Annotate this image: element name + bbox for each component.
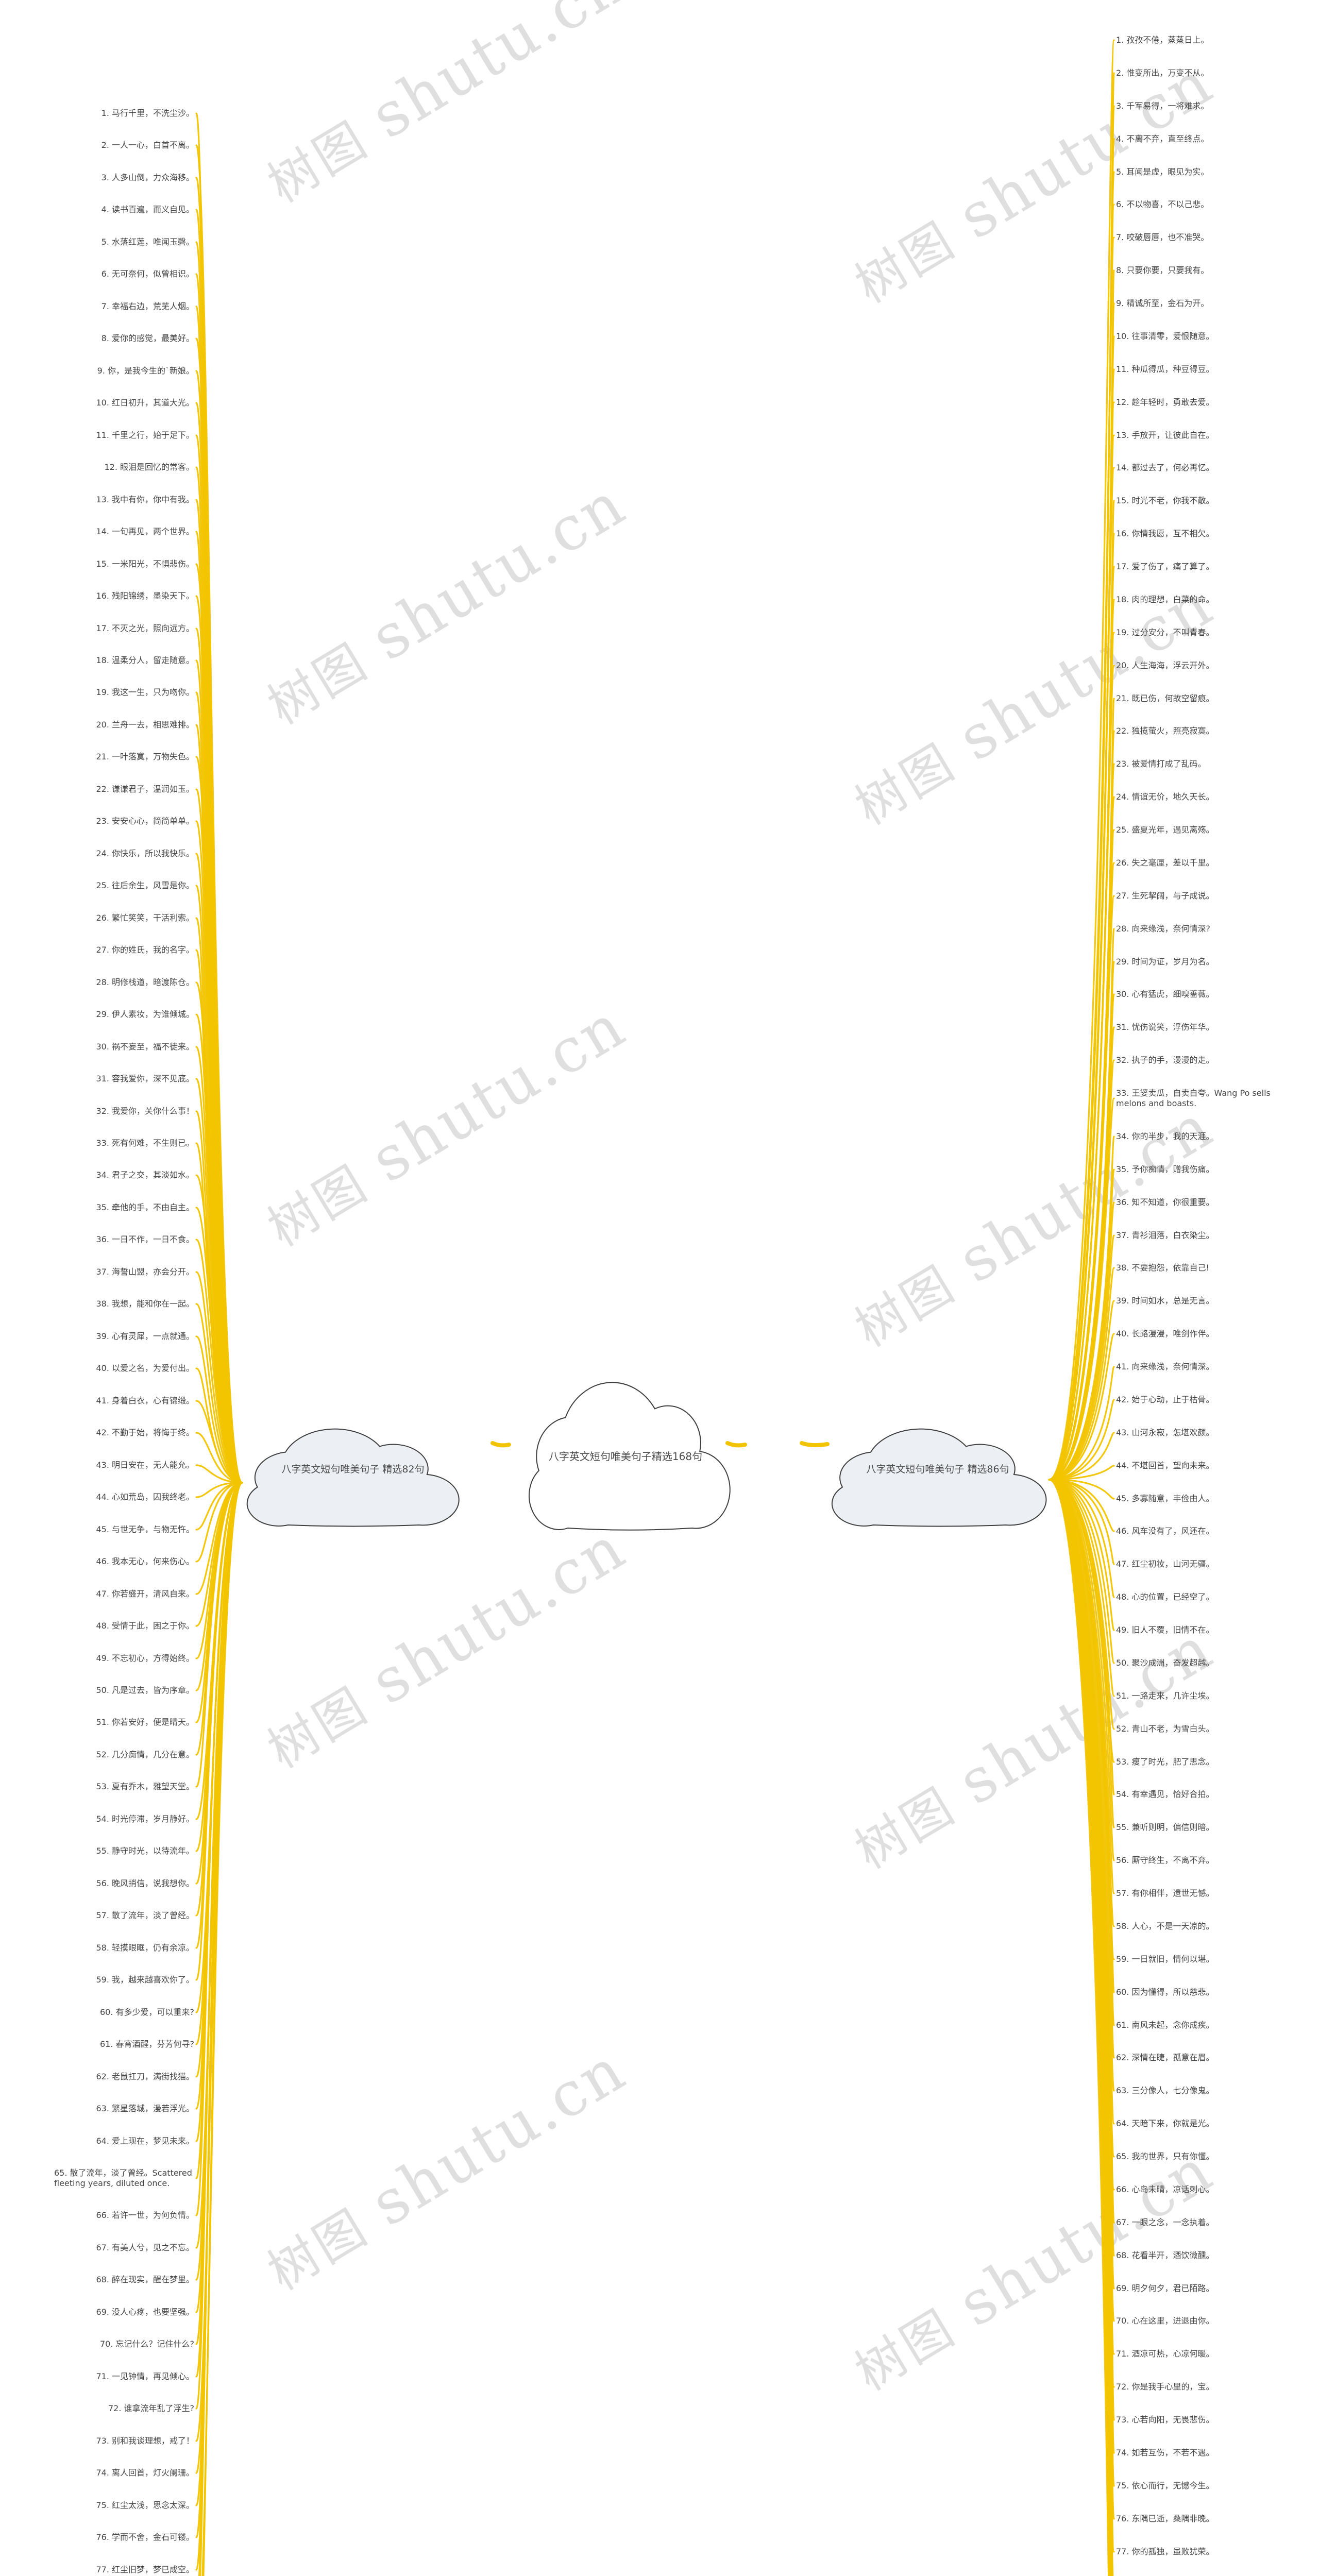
left-item: 15. 一米阳光，不惧悲伤。: [96, 559, 194, 569]
right-item: 15. 时光不老，你我不散。: [1116, 496, 1214, 506]
right-item: 69. 明夕何夕，君已陌路。: [1116, 2283, 1214, 2294]
left-item: 23. 安安心心，简简单单。: [96, 816, 194, 826]
right-item: 54. 有幸遇见，恰好合拍。: [1116, 1789, 1214, 1800]
left-item: 58. 轻摸眼眶，仍有余凉。: [96, 1943, 194, 1953]
right-item: 62. 深情在睫，孤意在眉。: [1116, 2053, 1214, 2063]
right-item: 29. 时间为证，岁月为名。: [1116, 957, 1214, 967]
right-item: 77. 你的孤独，虽败犹荣。: [1116, 2547, 1214, 2557]
left-item: 11. 千里之行，始于足下。: [96, 430, 194, 440]
right-item: 25. 盛夏光年，遇见离殇。: [1116, 825, 1214, 835]
right-item: 43. 山河永寂，怎堪欢颜。: [1116, 1428, 1214, 1438]
right-item: 65. 我的世界，只有你懂。: [1116, 2151, 1214, 2162]
right-item: 35. 予你痴情，赠我伤痛。: [1116, 1164, 1214, 1175]
right-item: 49. 旧人不覆，旧情不在。: [1116, 1625, 1214, 1635]
left-item: 17. 不灭之光，照向远方。: [96, 623, 194, 634]
left-item: 5. 水落红莲，唯闻玉磬。: [102, 237, 194, 247]
right-item: 4. 不离不弃，直至终点。: [1116, 134, 1209, 144]
left-item: 4. 读书百遍，而义自见。: [102, 205, 194, 215]
right-item: 39. 时间如水，总是无言。: [1116, 1296, 1214, 1306]
left-item: 31. 容我爱你，深不见底。: [96, 1074, 194, 1084]
left-item: 36. 一日不作，一日不食。: [96, 1234, 194, 1245]
right-item: 68. 花看半开，酒饮微醺。: [1116, 2250, 1214, 2261]
right-item: 73. 心若向阳，无畏悲伤。: [1116, 2415, 1214, 2425]
left-item: 25. 往后余生，风雪是你。: [96, 880, 194, 891]
right-item: 53. 瘦了时光，肥了思念。: [1116, 1757, 1214, 1767]
left-item: 19. 我这一生，只为吻你。: [96, 687, 194, 698]
right-item: 26. 失之毫厘，差以千里。: [1116, 858, 1214, 868]
right-item: 59. 一日就旧，情何以堪。: [1116, 1954, 1214, 1964]
left-item: 68. 醉在现实，醒在梦里。: [96, 2275, 194, 2285]
right-item: 63. 三分像人，七分像鬼。: [1116, 2086, 1214, 2096]
left-item: 1. 马行千里，不洗尘沙。: [102, 108, 194, 118]
left-item: 65. 散了流年，淡了曾经。Scattered fleeting years, …: [54, 2168, 194, 2189]
left-item: 50. 凡是过去，皆为序章。: [96, 1685, 194, 1696]
right-item: 70. 心在这里，进退由你。: [1116, 2316, 1214, 2326]
left-item: 70. 忘记什么？记住什么?: [100, 2339, 194, 2349]
left-item: 72. 谁拿流年乱了浮生?: [108, 2403, 194, 2414]
right-item: 57. 有你相伴，遗世无憾。: [1116, 1888, 1214, 1899]
right-item: 66. 心岛未晴，凉话刺心。: [1116, 2184, 1214, 2195]
right-item: 74. 如若互伤，不若不遇。: [1116, 2448, 1214, 2458]
item-connector: [1049, 106, 1114, 1480]
right-item: 72. 你是我手心里的，宝。: [1116, 2382, 1214, 2392]
left-item: 49. 不忘初心，方得始终。: [96, 1653, 194, 1664]
right-item: 16. 你情我愿，互不相欠。: [1116, 529, 1214, 539]
left-item-list: 1. 马行千里，不洗尘沙。2. 一人一心，白首不离。3. 人多山倒，力众海移。4…: [28, 108, 194, 2576]
left-item: 39. 心有灵犀，一点就通。: [96, 1331, 194, 1342]
left-item: 63. 繁星落城，漫若浮光。: [96, 2104, 194, 2114]
left-item: 9. 你，是我今生的`新娘。: [97, 366, 194, 376]
left-item: 57. 散了流年，淡了曾经。: [96, 1910, 194, 1921]
right-item: 9. 精诚所至，金石为开。: [1116, 298, 1209, 309]
right-branch-link-2: [802, 1443, 827, 1445]
right-item: 10. 往事清零，爱恨随意。: [1116, 331, 1214, 342]
right-branch-title: 八字英文短句唯美句子 精选86句: [832, 1463, 1043, 1476]
left-item: 76. 学而不舍，金石可镂。: [96, 2532, 194, 2543]
left-item: 73. 别和我谈理想，戒了！: [96, 2436, 194, 2446]
right-item: 71. 酒凉可热，心凉何暖。: [1116, 2349, 1214, 2359]
right-item: 40. 长路漫漫，唯剑作伴。: [1116, 1329, 1214, 1339]
right-item-list: 1. 孜孜不倦，蒸蒸日上。2. 惟变所出，万变不从。3. 千军易得，一将难求。4…: [1116, 35, 1286, 2576]
left-item: 47. 你若盛开，清风自来。: [96, 1589, 194, 1599]
right-item: 28. 向来缘浅，奈何情深?: [1116, 924, 1210, 934]
right-item: 60. 因为懂得，所以慈悲。: [1116, 1987, 1214, 1997]
root-node-title: 八字英文短句唯美句子精选168句: [531, 1449, 720, 1464]
right-item: 6. 不以物喜，不以己悲。: [1116, 199, 1209, 210]
left-branch-link: [493, 1443, 509, 1445]
left-item: 3. 人多山倒，力众海移。: [102, 173, 194, 183]
right-item: 51. 一路走来，几许尘埃。: [1116, 1691, 1214, 1701]
left-item: 30. 祸不妄至，福不徒来。: [96, 1042, 194, 1052]
right-item: 64. 天暗下来，你就是光。: [1116, 2119, 1214, 2129]
right-item: 50. 聚沙成洲，奋发超越。: [1116, 1658, 1214, 1668]
left-item: 28. 明修栈道，暗渡陈仓。: [96, 977, 194, 988]
left-item: 53. 夏有乔木，雅望天堂。: [96, 1782, 194, 1792]
left-item: 46. 我本无心，何来伤心。: [96, 1556, 194, 1567]
left-item: 42. 不勤于始，将悔于终。: [96, 1428, 194, 1438]
right-item: 55. 兼听则明，偏信则暗。: [1116, 1822, 1214, 1833]
left-item: 22. 谦谦君子，温润如玉。: [96, 784, 194, 794]
left-item: 75. 红尘太浅，思念太深。: [96, 2500, 194, 2511]
right-item: 48. 心的位置，已经空了。: [1116, 1592, 1214, 1602]
right-item: 38. 不要抱怨，依靠自己!: [1116, 1263, 1209, 1273]
right-item: 75. 依心而行，无憾今生。: [1116, 2481, 1214, 2491]
right-item: 2. 惟变所出，万变不从。: [1116, 68, 1209, 78]
left-item: 41. 身着白衣，心有锦缎。: [96, 1396, 194, 1406]
left-item: 8. 爱你的感觉，最美好。: [102, 333, 194, 344]
left-item: 60. 有多少爱，可以重来?: [100, 2007, 194, 2018]
left-item: 52. 几分痴情，几分在意。: [96, 1750, 194, 1760]
right-item: 24. 情谊无价，地久天长。: [1116, 792, 1214, 802]
right-item: 34. 你的半步，我的天涯。: [1116, 1131, 1214, 1142]
right-item: 52. 青山不老，为雪白头。: [1116, 1724, 1214, 1734]
left-item: 61. 春宵酒醒，芬芳何寻?: [100, 2039, 194, 2049]
left-item: 59. 我，越来越喜欢你了。: [96, 1975, 194, 1985]
left-item: 38. 我想，能和你在一起。: [96, 1299, 194, 1309]
right-item: 7. 咬破唇唇，也不准哭。: [1116, 232, 1209, 243]
left-item: 77. 红尘旧梦，梦已成空。: [96, 2565, 194, 2575]
right-item: 36. 知不知道，你很重要。: [1116, 1197, 1214, 1208]
left-item: 24. 你快乐，所以我快乐。: [96, 849, 194, 859]
left-item: 69. 没人心疼，也要坚强。: [96, 2307, 194, 2317]
left-branch-title: 八字英文短句唯美句子 精选82句: [247, 1463, 459, 1476]
left-item: 43. 明日安在，无人能允。: [96, 1460, 194, 1470]
left-item: 6. 无可奈何，似曾相识。: [102, 269, 194, 279]
left-item: 67. 有美人兮，见之不忘。: [96, 2243, 194, 2253]
left-item: 18. 温柔分人，留走随意。: [96, 655, 194, 666]
right-item: 30. 心有猛虎，细嗅蔷薇。: [1116, 989, 1214, 999]
branch-connectors: [196, 40, 1114, 2576]
right-item: 18. 肉的理想，白菜的命。: [1116, 595, 1214, 605]
right-item: 19. 过分安分，不叫青春。: [1116, 628, 1214, 638]
right-item: 41. 向来缘浅，奈何情深。: [1116, 1362, 1214, 1372]
left-item: 14. 一句再见，两个世界。: [96, 527, 194, 537]
right-item: 67. 一眼之念，一念执着。: [1116, 2217, 1214, 2228]
right-branch-link: [728, 1443, 745, 1445]
right-item: 21. 既已伤，何故空留痕。: [1116, 693, 1214, 704]
left-item: 40. 以爱之名，为爱付出。: [96, 1363, 194, 1374]
right-item: 37. 青衫泪落，白衣染尘。: [1116, 1230, 1214, 1241]
right-item: 20. 人生海海，浮云开外。: [1116, 660, 1214, 671]
right-item: 76. 东隅已逝，桑隅非晚。: [1116, 2514, 1214, 2524]
right-item: 22. 独揽萤火，照亮寂寞。: [1116, 726, 1214, 736]
right-item: 58. 人心，不是一天凉的。: [1116, 1921, 1214, 1931]
left-item: 16. 残阳锦绣，墨染天下。: [96, 591, 194, 601]
right-item: 5. 耳闻是虚，眼见为实。: [1116, 167, 1209, 177]
left-item: 20. 兰舟一去，相思难排。: [96, 720, 194, 730]
left-item: 74. 离人回首，灯火阑珊。: [96, 2468, 194, 2478]
right-item: 27. 生死挈阔，与子成说。: [1116, 891, 1214, 901]
left-item: 71. 一见钟情，再见倾心。: [96, 2371, 194, 2382]
right-item: 1. 孜孜不倦，蒸蒸日上。: [1116, 35, 1209, 45]
right-item: 11. 种瓜得瓜，种豆得豆。: [1116, 364, 1214, 375]
left-item: 12. 眼泪是回忆的常客。: [104, 462, 194, 472]
right-item: 3. 千军易得，一将难求。: [1116, 101, 1209, 111]
right-item: 45. 多寡随意，丰俭由人。: [1116, 1494, 1214, 1504]
right-item: 8. 只要你要，只要我有。: [1116, 265, 1209, 276]
left-item: 7. 幸福右边，荒芜人烟。: [102, 301, 194, 312]
right-item: 13. 手放开，让彼此自在。: [1116, 430, 1214, 440]
left-item: 29. 伊人素妆，为谁倾城。: [96, 1009, 194, 1020]
left-item: 48. 受情于此，困之于你。: [96, 1621, 194, 1631]
left-item: 44. 心如荒岛，囚我终老。: [96, 1492, 194, 1502]
left-item: 51. 你若安好，便是晴天。: [96, 1717, 194, 1727]
right-item: 12. 趁年轻时，勇敢去爱。: [1116, 397, 1214, 408]
right-item: 14. 都过去了，何必再忆。: [1116, 463, 1214, 473]
right-item: 42. 始于心动，止于枯骨。: [1116, 1395, 1214, 1405]
left-item: 27. 你的姓氏，我的名字。: [96, 945, 194, 955]
left-item: 21. 一叶落寞，万物失色。: [96, 752, 194, 762]
right-item: 31. 忧伤说笑，浮伤年华。: [1116, 1022, 1214, 1032]
left-item: 66. 若许一世，为何负情。: [96, 2210, 194, 2221]
right-item: 44. 不堪回首，望向未来。: [1116, 1461, 1214, 1471]
left-item: 13. 我中有你，你中有我。: [96, 495, 194, 505]
right-item: 56. 厮守终生，不离不弃。: [1116, 1855, 1214, 1866]
left-item: 45. 与世无争，与物无忤。: [96, 1524, 194, 1535]
left-item: 64. 爱上现在，梦见未来。: [96, 2136, 194, 2146]
left-item: 35. 牵他的手，不由自主。: [96, 1202, 194, 1213]
right-item: 23. 被爱情打成了乱码。: [1116, 759, 1206, 769]
right-item: 32. 执子的手，漫漫的走。: [1116, 1055, 1214, 1065]
left-item: 10. 红日初升，其道大光。: [96, 398, 194, 408]
left-item: 33. 死有何难，不生则已。: [96, 1138, 194, 1148]
right-item: 46. 风车没有了，风还在。: [1116, 1526, 1214, 1536]
right-branch-cloud: [832, 1429, 1046, 1527]
right-item: 61. 南风未起，念你成疾。: [1116, 2020, 1214, 2030]
left-item: 62. 老鼠扛刀，满街找猫。: [96, 2072, 194, 2082]
left-branch-cloud: [247, 1429, 459, 1527]
left-item: 37. 海誓山盟，亦会分开。: [96, 1267, 194, 1277]
right-item: 33. 王婆卖瓜，自卖自夸。Wang Po sells melons and b…: [1116, 1088, 1271, 1109]
right-item: 47. 红尘初妆，山河无疆。: [1116, 1559, 1214, 1569]
left-item: 32. 我爱你，关你什么事！: [96, 1106, 194, 1116]
left-item: 34. 君子之交，其淡如水。: [96, 1170, 194, 1180]
right-item: 17. 爱了伤了，痛了算了。: [1116, 562, 1214, 572]
left-item: 56. 晚风捎信，说我想你。: [96, 1878, 194, 1889]
left-item: 2. 一人一心，白首不离。: [102, 140, 194, 150]
left-item: 26. 繁忙笑笑，干活利索。: [96, 913, 194, 923]
left-item: 55. 静守时光，以待流年。: [96, 1846, 194, 1856]
left-item: 54. 时光停滞，岁月静好。: [96, 1814, 194, 1824]
